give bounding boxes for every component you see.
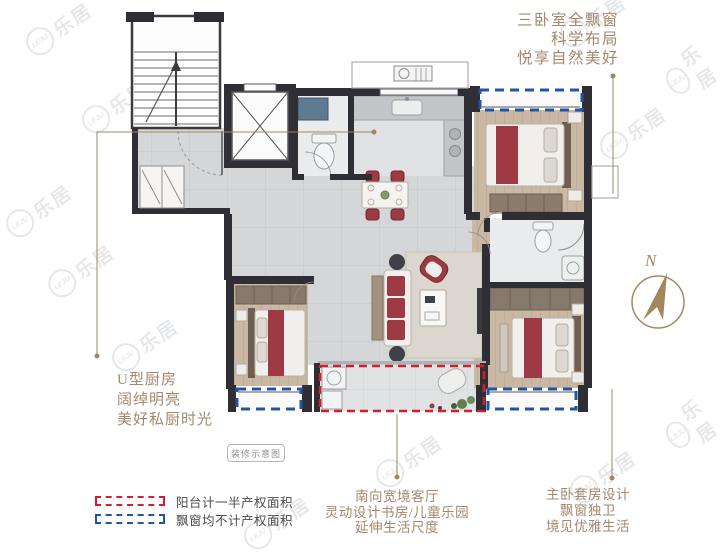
coffee-table <box>420 290 446 326</box>
legend-label: 阳台计一半产权面积 <box>176 492 293 511</box>
annotation-living-room: 南向宽境客厅 灵动设计书房/儿童乐园 延伸生活尺度 <box>325 489 469 536</box>
annotation-line: 美好私厨时光 <box>117 410 213 430</box>
annotation-kitchen: U型厨房 阔绰明亮 美好私厨时光 <box>117 370 213 430</box>
area-legend: 阳台计一半产权面积 飘窗均不计产权面积 <box>95 494 293 530</box>
console-table <box>372 276 383 340</box>
nightstand <box>568 190 582 201</box>
annotation-line: 悦享自然美好 <box>517 49 619 68</box>
side-table <box>389 254 405 270</box>
cooktop-burner <box>450 129 461 140</box>
ensuite-bathroom <box>490 218 584 286</box>
legend-swatch-baywindow <box>95 514 165 524</box>
legend-item-balcony: 阳台计一半产权面积 <box>95 494 293 508</box>
legend-swatch-balcony <box>95 496 165 506</box>
dining-chair <box>391 209 404 220</box>
schematic-badge: 装修示意图 <box>227 444 285 462</box>
dining-chair <box>366 209 379 220</box>
vanity-sink <box>562 256 584 280</box>
nightstand <box>236 364 247 375</box>
annotation-line: 南向宽境客厅 <box>325 489 469 505</box>
kitchen-sink <box>392 100 422 115</box>
compass-north-label: N <box>644 251 658 270</box>
elevator <box>224 84 296 168</box>
cooktop-burner <box>450 146 461 157</box>
dining-chair <box>391 171 404 182</box>
annotation-line: 三卧室全飘窗 <box>517 11 619 30</box>
floorplan-page: LEJU乐居 LEJU乐居 LEJU乐居 LEJU乐居 LEJU乐居 LEJU乐… <box>0 0 720 540</box>
study-bedroom <box>234 284 308 386</box>
toilet <box>535 230 551 252</box>
stairwell <box>126 12 224 128</box>
annotation-line: 科学布局 <box>517 30 619 49</box>
guest-bathroom <box>296 96 348 176</box>
plant <box>457 399 467 409</box>
kitchen-window <box>380 89 458 95</box>
master-bedroom <box>474 286 584 388</box>
tv <box>477 288 482 334</box>
legend-label: 飘窗均不计产权面积 <box>176 510 293 529</box>
bedroom-top-right <box>474 94 584 214</box>
annotation-line: 飘窗独卫 <box>546 503 630 519</box>
annotation-line: 主卧套房设计 <box>546 487 630 503</box>
north-compass: N <box>632 251 684 328</box>
annotation-line: U型厨房 <box>117 370 213 390</box>
annotation-line: 境见优雅生活 <box>546 519 630 535</box>
floorplan-drawing: N <box>0 0 720 540</box>
toilet <box>314 143 334 169</box>
nightstand <box>572 372 584 383</box>
legend-item-baywindow: 飘窗均不计产权面积 <box>95 512 293 526</box>
annotation-master-suite: 主卧套房设计 飘窗独卫 境见优雅生活 <box>546 487 630 535</box>
annotation-line: 灵动设计书房/儿童乐园 <box>325 505 469 521</box>
nightstand <box>236 310 247 321</box>
annotation-line: 阔绰明亮 <box>117 390 213 410</box>
kitchen <box>352 96 466 176</box>
nightstand <box>568 112 582 123</box>
washer <box>298 98 328 120</box>
annotation-bedrooms: 三卧室全飘窗 科学布局 悦享自然美好 <box>517 11 619 68</box>
compass-needle-icon <box>643 273 667 320</box>
nightstand <box>572 304 584 315</box>
side-table <box>389 346 405 362</box>
annotation-line: 延伸生活尺度 <box>325 520 469 536</box>
laundry-unit <box>322 367 346 389</box>
